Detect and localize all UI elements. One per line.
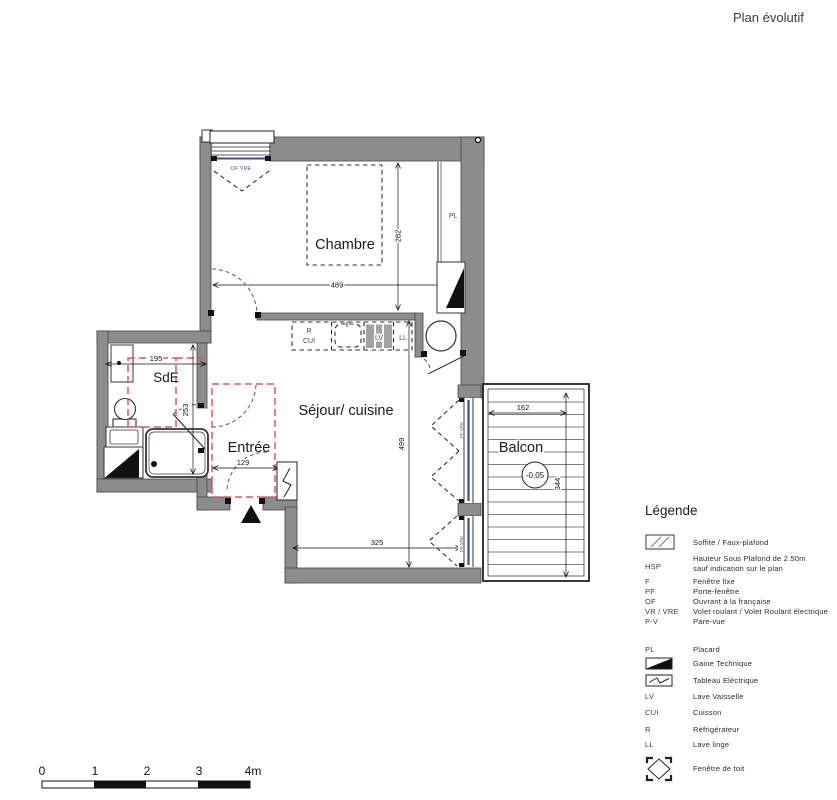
- gaine-technique-sde: [104, 447, 143, 478]
- dim-sejour-height: 499: [397, 438, 406, 451]
- scale-tick-3: 3: [196, 764, 203, 778]
- sejour-room: Séjour/ cuisine 499 325: [293, 321, 461, 567]
- tableau-electrique-icon: [645, 674, 693, 692]
- legend-code: LL: [645, 740, 693, 749]
- window-swing-dashed: [214, 171, 269, 191]
- portes-fenetres-balcon: PF VRE PF VRE: [429, 398, 481, 567]
- refrigerateur-label: R: [306, 328, 311, 335]
- pf-swing-2: [431, 451, 459, 501]
- legend-item-pv: P-V Pare-vue: [645, 617, 837, 627]
- sejour-label: Séjour/ cuisine: [298, 403, 393, 419]
- dim-sde-height: 253: [181, 404, 190, 417]
- legend-label-line1: Hauteur Sous Plafond de 2.50m: [693, 554, 806, 563]
- legend-item-soffite: Soffite / Faux-plafond: [645, 534, 837, 556]
- pf-code-lower: PF VRE: [459, 536, 464, 552]
- legend-item-of: OF Ouvrant à la française: [645, 597, 837, 607]
- balcony: Balcon 162 344 -0.05: [483, 384, 589, 581]
- legend-label: Lave Vaisselle: [693, 692, 744, 702]
- legend-item-gaine: Gaine Technique: [645, 657, 837, 675]
- sde-room: SdE 195 253: [104, 345, 208, 478]
- legend-code: LV: [645, 692, 693, 701]
- scale-tick-4: 4m: [245, 764, 262, 778]
- legend-label: Gaine Technique: [693, 657, 752, 669]
- legend-label: Placard: [693, 645, 720, 655]
- technical-closet: [421, 321, 466, 374]
- legend-code: F: [645, 577, 693, 586]
- pf-swing-1: [431, 400, 459, 451]
- soffite-hatch-icon: [645, 534, 693, 556]
- legend-label-line2: sauf indication sur le plan: [693, 564, 783, 573]
- legend-code: VR / VRE: [645, 607, 693, 616]
- water-heater-circle: [426, 321, 456, 351]
- vent-circle-marker: [476, 138, 481, 143]
- chambre-room: Chambre 489 282 PL: [208, 138, 481, 319]
- chambre-label: Chambre: [315, 237, 375, 253]
- legend-label: Tableau Eléctrique: [693, 674, 758, 686]
- legend-label: Fenêtre de toit: [693, 756, 744, 774]
- balcony-level: -0.05: [526, 471, 545, 480]
- gaine-technique-icon: [645, 657, 693, 675]
- legend-label: Volet roulant / Volet Roulant électrique: [693, 607, 828, 617]
- kitchen-strip: R CUI LV LL: [292, 322, 412, 350]
- legend-heading: Légende: [645, 503, 698, 518]
- kitchen-sink: [335, 324, 361, 347]
- legend-item-pl: PL Placard: [645, 645, 837, 655]
- legend-label: Réfrigérateur: [693, 725, 739, 735]
- toilet: [113, 399, 136, 431]
- chambre-window: OF VRE: [202, 130, 274, 191]
- legend-item-cui: CUI Cuisson: [645, 708, 837, 718]
- legend-code: HSP: [645, 554, 693, 571]
- legend-item-ll: LL Lave linge: [645, 740, 837, 750]
- lave-vaisselle-label: LV: [375, 335, 383, 342]
- legend-item-lv: LV Lave Vaisselle: [645, 692, 837, 702]
- floor-plan-page: OF VRE Chambre 489 282 PL R CUI: [0, 0, 837, 800]
- dim-sde-width: 195: [150, 354, 163, 363]
- scale-tick-2: 2: [144, 764, 151, 778]
- scale-tick-1: 1: [92, 764, 99, 778]
- legend-label: Lave linge: [693, 740, 729, 750]
- legend-code: PL: [645, 645, 693, 654]
- legend-item-fenetre-toit: Fenêtre de toit: [645, 756, 837, 787]
- sde-evolutive-outline: [128, 358, 176, 427]
- cuisson-label: CUI: [303, 338, 315, 345]
- balcon-label: Balcon: [499, 440, 543, 456]
- legend-item-r: R Réfrigérateur: [645, 725, 837, 735]
- entree-label: Entrée: [228, 440, 271, 456]
- legend-label: Soffite / Faux-plafond: [693, 534, 769, 548]
- legend-label: Ouvrant à la française: [693, 597, 771, 607]
- sde-label: SdE: [153, 370, 179, 385]
- placard-label: PL: [449, 213, 458, 220]
- dim-sejour-width: 325: [371, 538, 384, 547]
- legend-item-pf: PF Porte-fenêtre: [645, 587, 837, 597]
- legend-label: Porte-fenêtre: [693, 587, 739, 597]
- legend-label: Hauteur Sous Plafond de 2.50m sauf indic…: [693, 554, 806, 573]
- washbasin-cabinet: [111, 345, 133, 382]
- vanity-sink: [106, 427, 143, 447]
- dim-chambre-width: 489: [331, 281, 344, 290]
- legend-code: P-V: [645, 617, 693, 626]
- dim-balcon-width: 162: [517, 403, 530, 412]
- entree-door-swing-upper: [212, 383, 256, 427]
- legend-label: Pare-vue: [693, 617, 725, 627]
- legend-label: Fenêtre fixe: [693, 577, 735, 587]
- pf-swing-3: [429, 516, 457, 566]
- legend-code: CUI: [645, 708, 693, 717]
- dim-entree-width: 129: [237, 458, 250, 467]
- legend-item-vr: VR / VRE Volet roulant / Volet Roulant é…: [645, 607, 837, 617]
- scale-bar: 0 1 2 3 4m: [39, 764, 262, 788]
- legend: Légende Soffite / Faux-plafond HSP Haute…: [645, 0, 837, 800]
- dim-balcon-height: 344: [553, 478, 562, 491]
- legend-code: R: [645, 725, 693, 734]
- window-code-label: OF VRE: [231, 166, 252, 172]
- legend-item-f: F Fenêtre fixe: [645, 577, 837, 587]
- gaine-technique-box: [437, 262, 465, 313]
- lave-linge-label: LL: [399, 335, 407, 342]
- chambre-door-swing: [212, 269, 257, 314]
- scale-tick-0: 0: [39, 764, 46, 778]
- dim-chambre-height: 282: [394, 230, 403, 243]
- entrance-arrow-triangle: [241, 505, 261, 523]
- legend-item-tableau: Tableau Eléctrique: [645, 674, 837, 692]
- legend-label: Cuisson: [693, 708, 722, 718]
- pf-code-upper: PF VRE: [459, 422, 464, 438]
- legend-item-hsp: HSP Hauteur Sous Plafond de 2.50m sauf i…: [645, 554, 837, 573]
- legend-code: OF: [645, 597, 693, 606]
- roof-window-icon: [645, 756, 693, 787]
- tableau-electrique-box: [277, 462, 297, 500]
- legend-code: PF: [645, 587, 693, 596]
